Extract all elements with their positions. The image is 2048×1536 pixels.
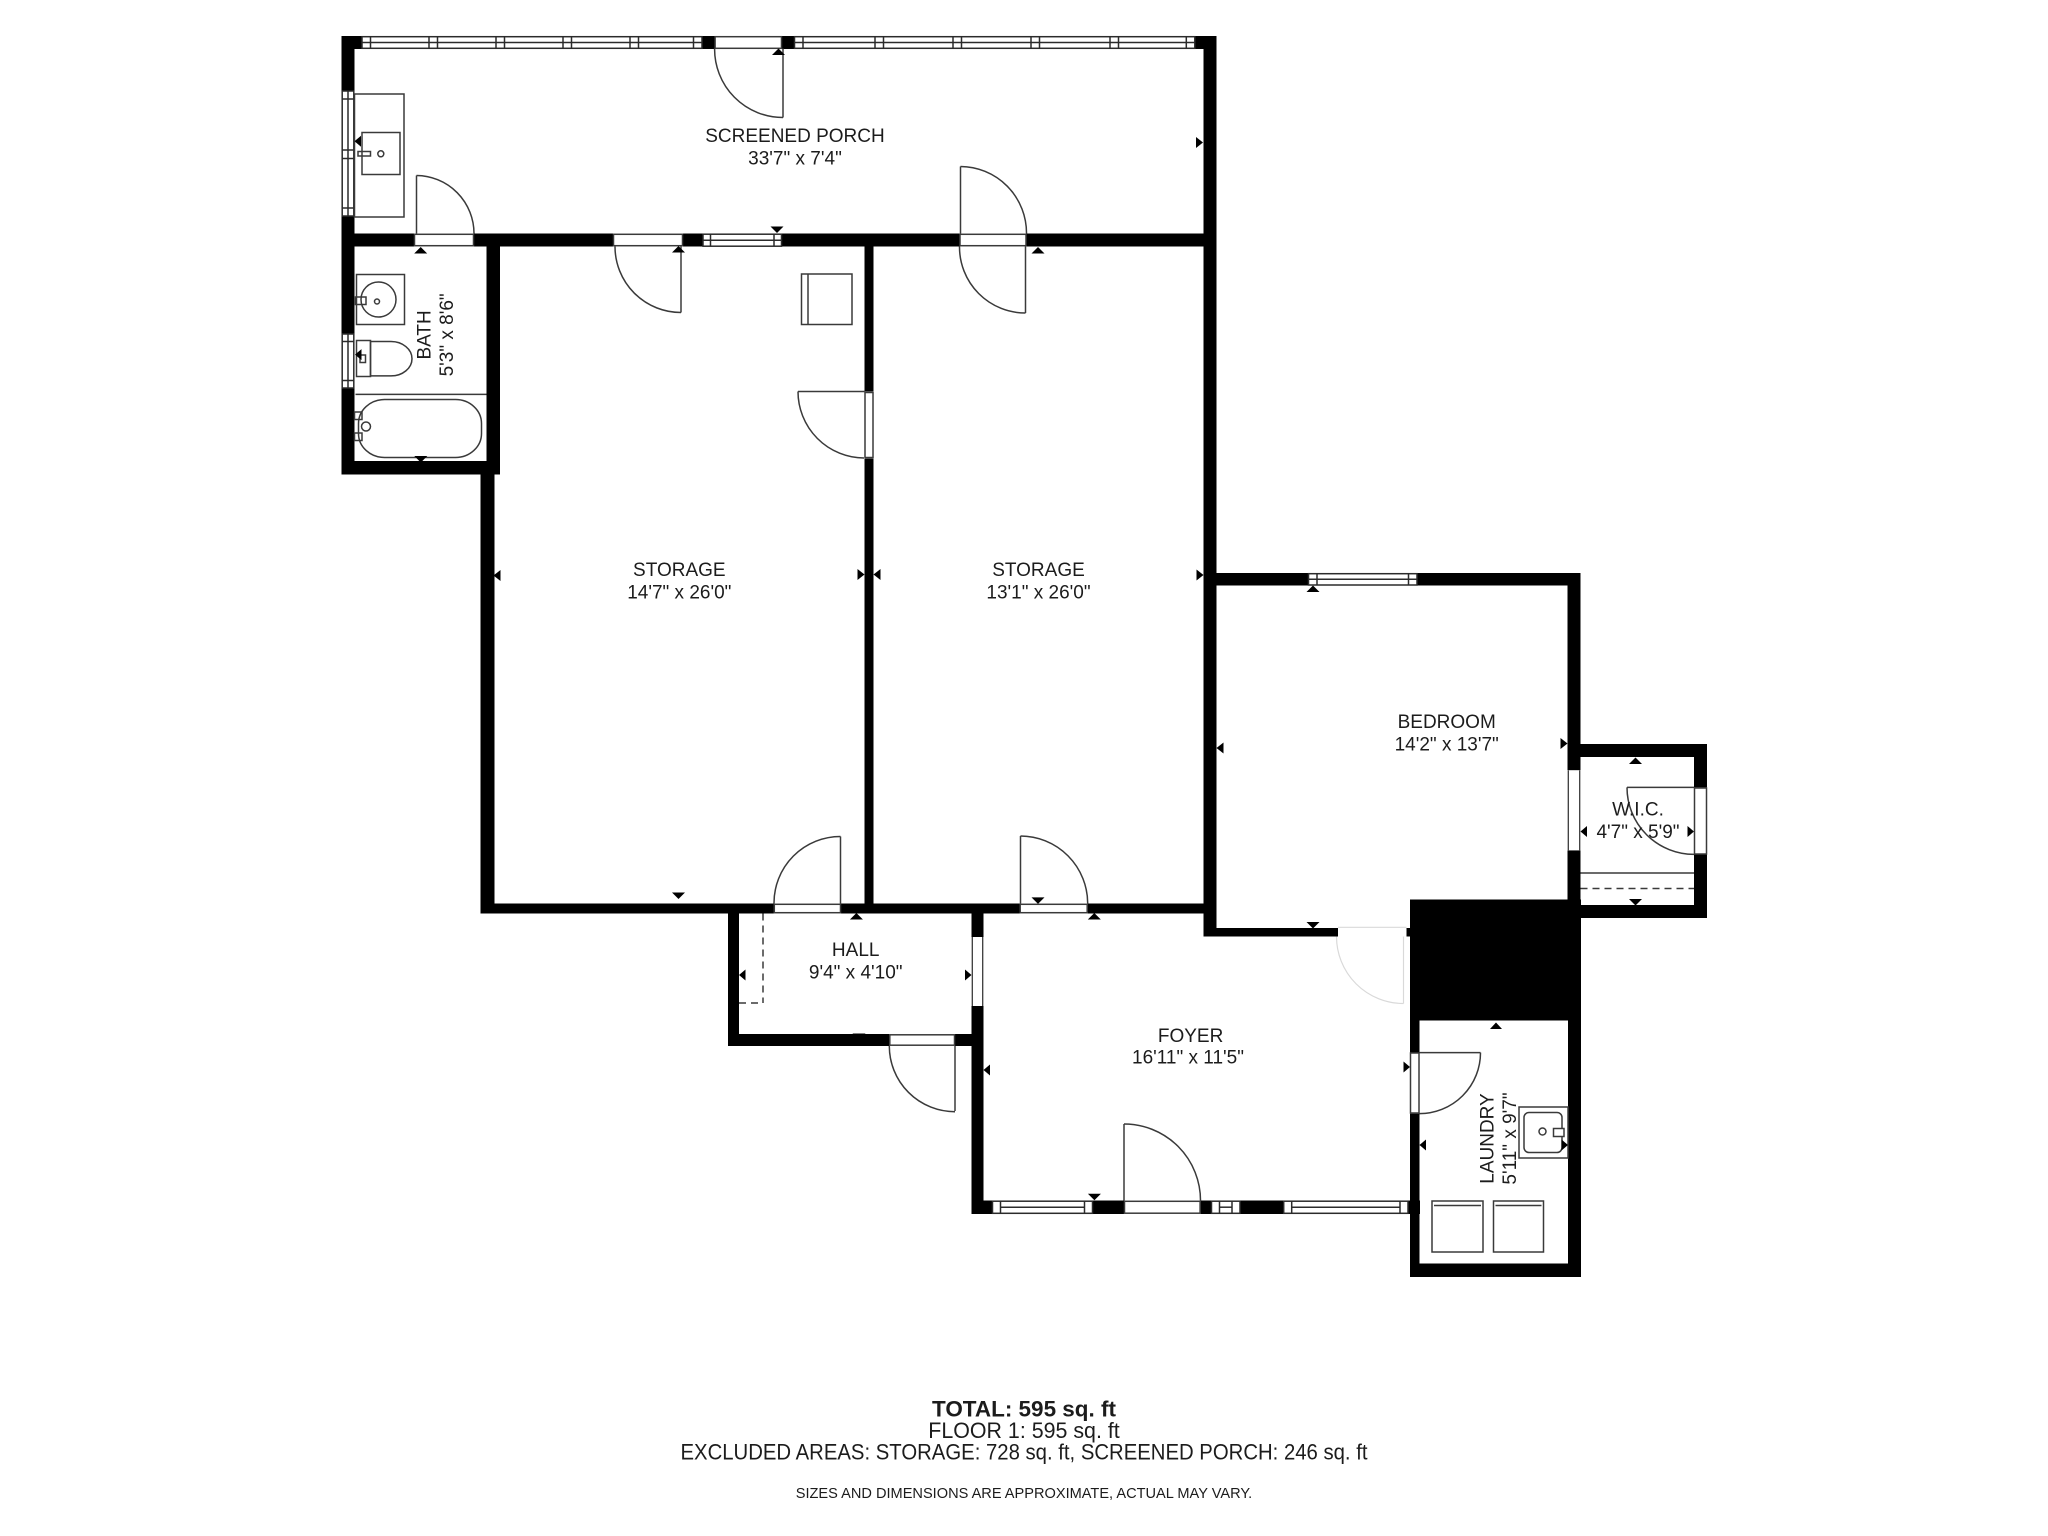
svg-text:14'2" x 13'7": 14'2" x 13'7" — [1395, 734, 1499, 755]
svg-text:HALL: HALL — [832, 940, 880, 961]
svg-text:14'7" x 26'0": 14'7" x 26'0" — [627, 582, 731, 603]
svg-text:W.I.C.: W.I.C. — [1612, 799, 1664, 820]
svg-text:BATH: BATH — [415, 310, 436, 359]
svg-text:13'1" x 26'0": 13'1" x 26'0" — [986, 582, 1090, 603]
svg-text:9'4" x 4'10": 9'4" x 4'10" — [809, 962, 903, 983]
svg-text:BEDROOM: BEDROOM — [1398, 712, 1496, 733]
svg-text:5'11" x 9'7": 5'11" x 9'7" — [1500, 1092, 1521, 1184]
svg-text:SCREENED PORCH: SCREENED PORCH — [705, 126, 884, 147]
svg-text:FOYER: FOYER — [1158, 1026, 1223, 1047]
svg-text:STORAGE: STORAGE — [992, 560, 1085, 581]
svg-text:4'7" x 5'9": 4'7" x 5'9" — [1596, 822, 1679, 843]
svg-text:16'11" x 11'5": 16'11" x 11'5" — [1132, 1048, 1244, 1069]
svg-text:STORAGE: STORAGE — [633, 560, 726, 581]
svg-text:LAUNDRY: LAUNDRY — [1478, 1093, 1499, 1184]
svg-text:EXCLUDED AREAS: STORAGE: 728 s: EXCLUDED AREAS: STORAGE: 728 sq. ft, SCR… — [681, 1440, 1368, 1465]
svg-text:SIZES AND DIMENSIONS ARE APPRO: SIZES AND DIMENSIONS ARE APPROXIMATE, AC… — [796, 1486, 1253, 1502]
svg-text:5'3" x 8'6": 5'3" x 8'6" — [437, 293, 458, 376]
svg-text:33'7" x 7'4": 33'7" x 7'4" — [748, 149, 842, 170]
